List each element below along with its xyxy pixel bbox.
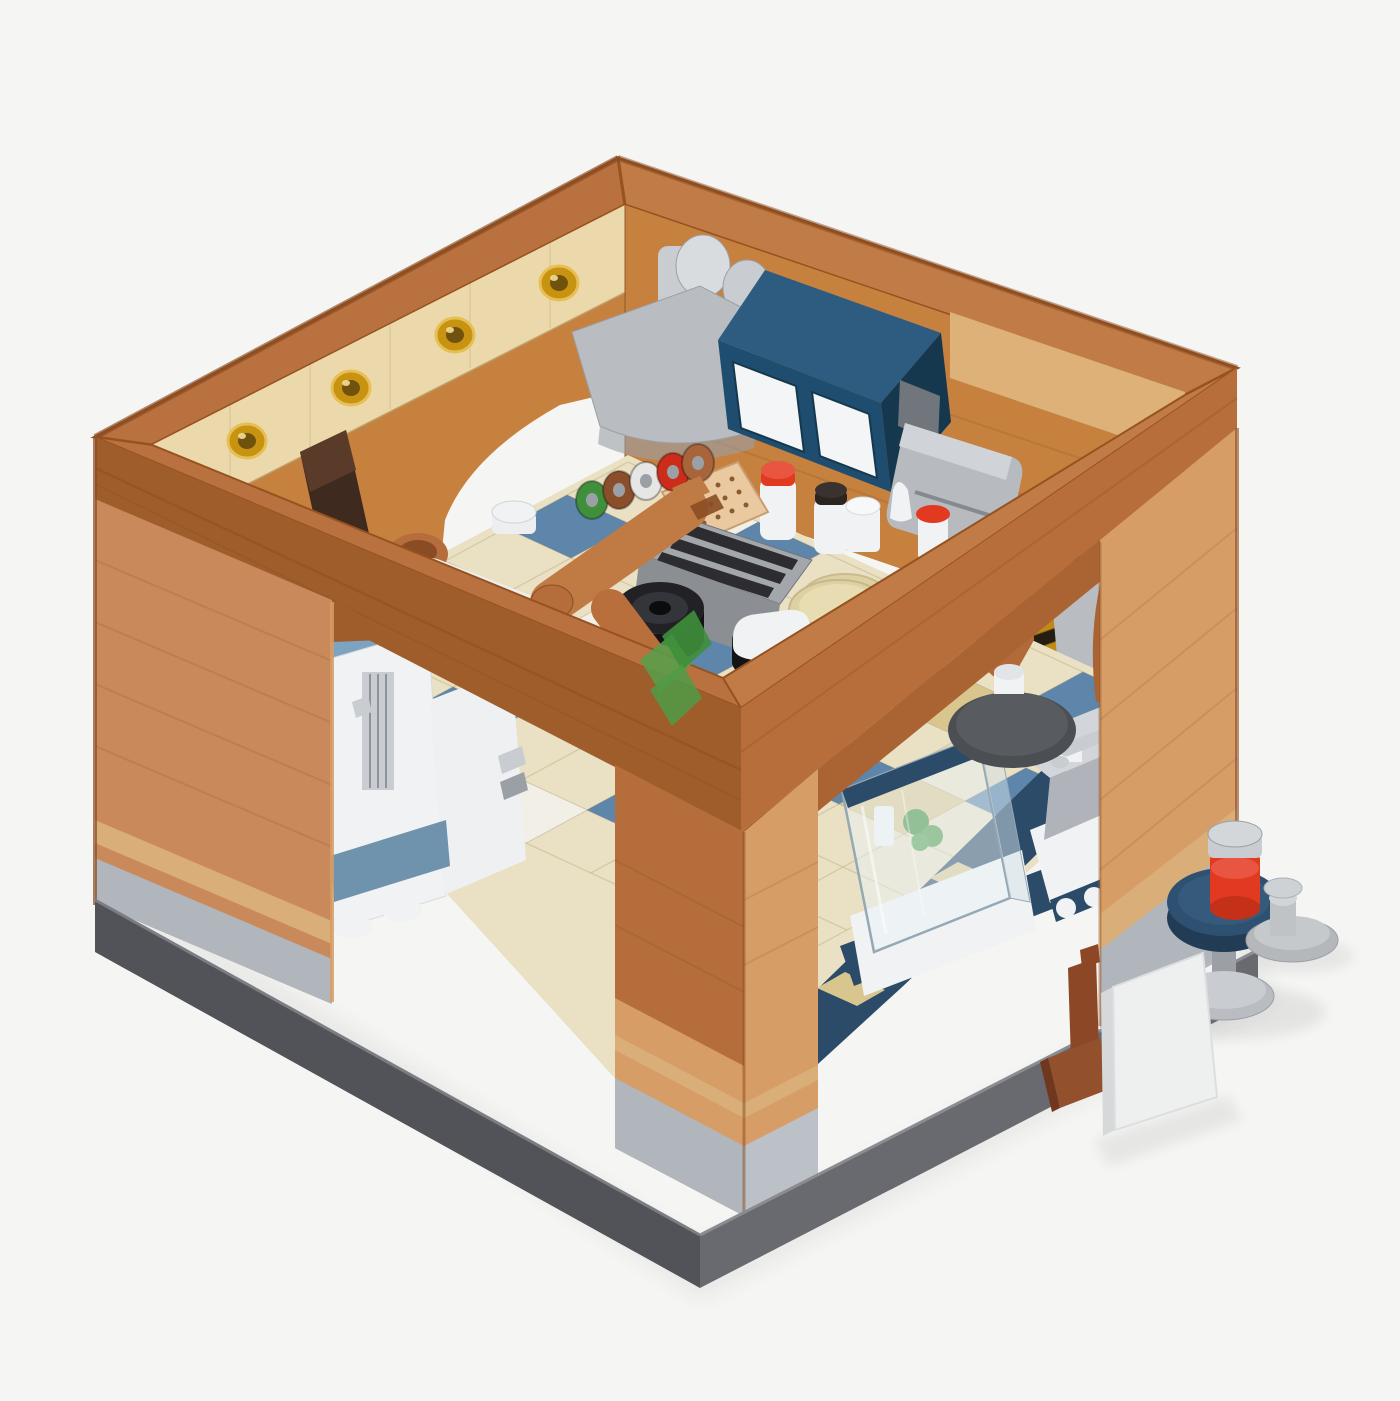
stool-seat <box>1264 878 1302 898</box>
turntable-top <box>956 692 1068 756</box>
product-render: Brick-built diner kitchen play set, isom… <box>0 0 1400 1400</box>
cup-bottom <box>1210 896 1260 920</box>
near-pillar <box>615 765 818 1216</box>
plate-axle <box>613 483 625 497</box>
bottle-cap-top <box>761 461 795 479</box>
plate-axle <box>586 493 598 507</box>
stand-notch <box>1080 944 1100 968</box>
machine-foot <box>332 914 372 938</box>
lamp-highlight <box>342 380 350 386</box>
plate-axle <box>640 474 652 488</box>
jar-lid <box>916 505 950 523</box>
lamp-highlight <box>238 433 246 439</box>
column-foot-top <box>994 664 1024 680</box>
cup-lid <box>1208 821 1262 847</box>
cup-shoulder <box>1211 857 1259 879</box>
lamp-highlight <box>550 275 558 281</box>
bottle-cap-top <box>815 482 847 498</box>
plate-axle <box>692 456 704 470</box>
plate-axle <box>667 465 679 479</box>
lamp-highlight <box>446 327 454 333</box>
bottle <box>814 498 848 554</box>
arm-stud-top <box>492 501 536 523</box>
kettle-lid <box>846 497 880 515</box>
coffee-cup <box>1208 821 1262 920</box>
render-canvas <box>0 0 1400 1400</box>
pot-hole <box>649 601 671 615</box>
machine-foot <box>382 898 422 922</box>
